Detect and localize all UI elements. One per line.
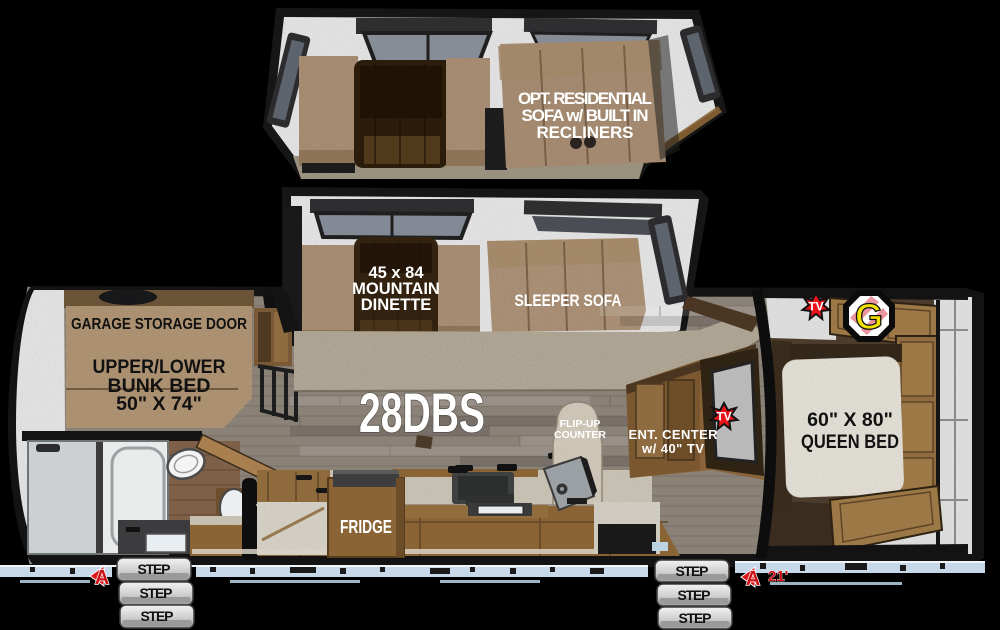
svg-text:G: G (855, 296, 883, 337)
svg-text:DINETTE: DINETTE (361, 296, 432, 314)
svg-text:STEP: STEP (138, 561, 171, 577)
svg-text:STEP: STEP (679, 610, 712, 626)
svg-text:28DBS: 28DBS (359, 381, 485, 444)
svg-text:50" X 74": 50" X 74" (116, 393, 202, 415)
svg-text:COUNTER: COUNTER (554, 429, 606, 441)
svg-text:21': 21' (768, 568, 788, 585)
svg-text:FRIDGE: FRIDGE (340, 517, 392, 537)
svg-text:STEP: STEP (676, 563, 709, 579)
svg-text:A: A (746, 568, 760, 590)
svg-text:w/ 40" TV: w/ 40" TV (641, 441, 704, 456)
svg-text:TV: TV (808, 300, 823, 314)
svg-text:STEP: STEP (678, 587, 711, 603)
svg-text:STEP: STEP (140, 585, 173, 601)
svg-text:QUEEN BED: QUEEN BED (801, 431, 899, 453)
svg-text:TV: TV (716, 410, 731, 424)
svg-text:STEP: STEP (141, 608, 174, 624)
svg-text:ENT. CENTER: ENT. CENTER (629, 427, 719, 442)
svg-text:GARAGE STORAGE DOOR: GARAGE STORAGE DOOR (71, 316, 247, 333)
svg-text:RECLINERS: RECLINERS (537, 123, 634, 142)
svg-text:60" X 80": 60" X 80" (807, 409, 893, 431)
svg-text:A: A (95, 567, 109, 589)
